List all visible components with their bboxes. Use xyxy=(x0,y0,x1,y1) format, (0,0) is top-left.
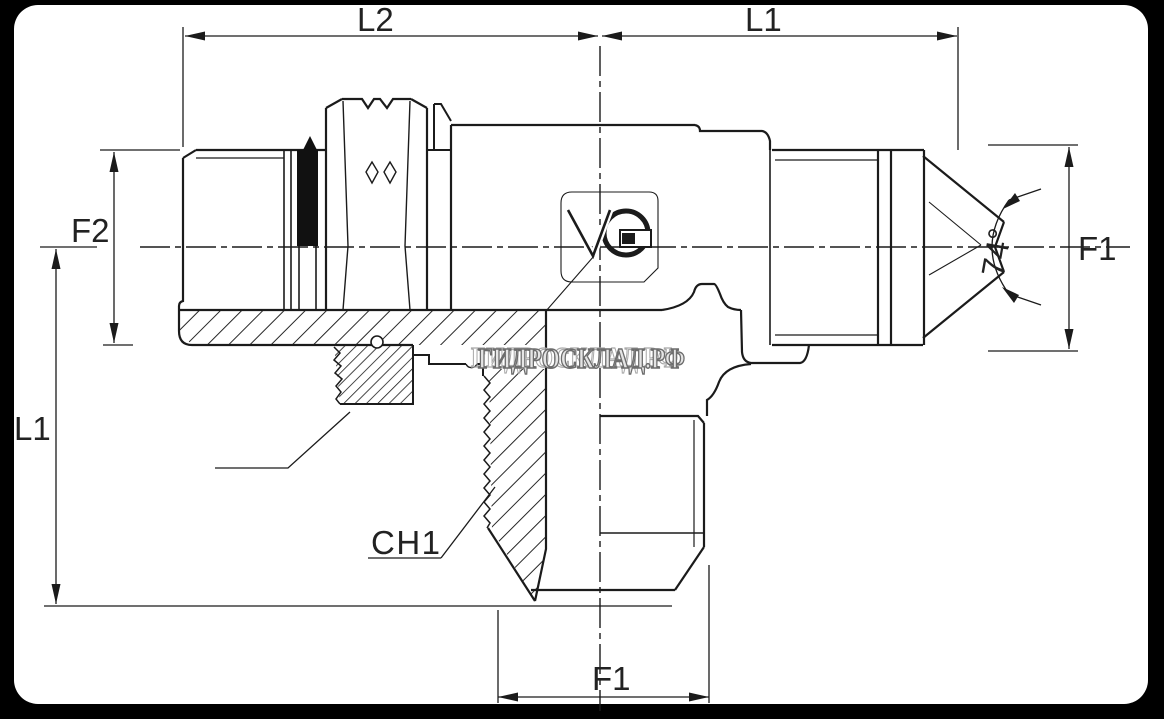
svg-text:L1: L1 xyxy=(14,410,51,447)
svg-text:CH1: CH1 xyxy=(371,524,442,561)
svg-text:F1: F1 xyxy=(592,660,631,697)
svg-text:F1: F1 xyxy=(1078,230,1117,267)
svg-text:F2: F2 xyxy=(71,212,110,249)
svg-text:L1: L1 xyxy=(745,1,782,38)
svg-text:L2: L2 xyxy=(357,1,394,38)
svg-text:ГИДРОСКЛАД.РФ: ГИДРОСКЛАД.РФ xyxy=(478,344,685,375)
